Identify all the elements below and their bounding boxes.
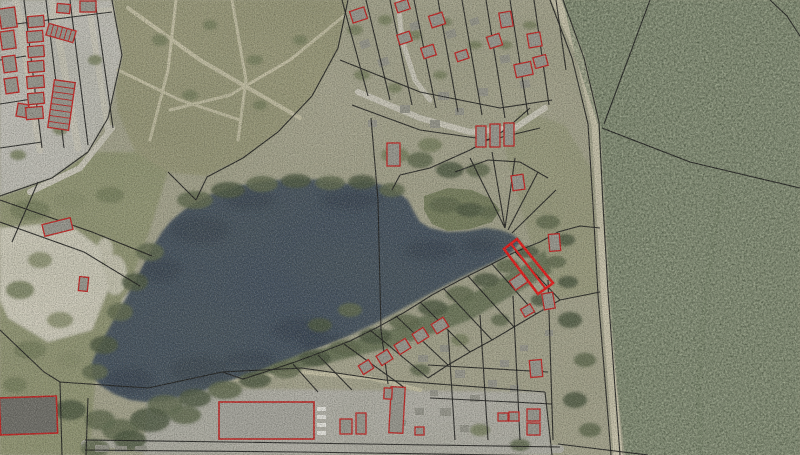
grain-layer — [0, 0, 800, 455]
map-canvas[interactable] — [0, 0, 800, 455]
aerial-cadastral-map[interactable] — [0, 0, 800, 455]
photo-grain-light — [0, 0, 800, 455]
